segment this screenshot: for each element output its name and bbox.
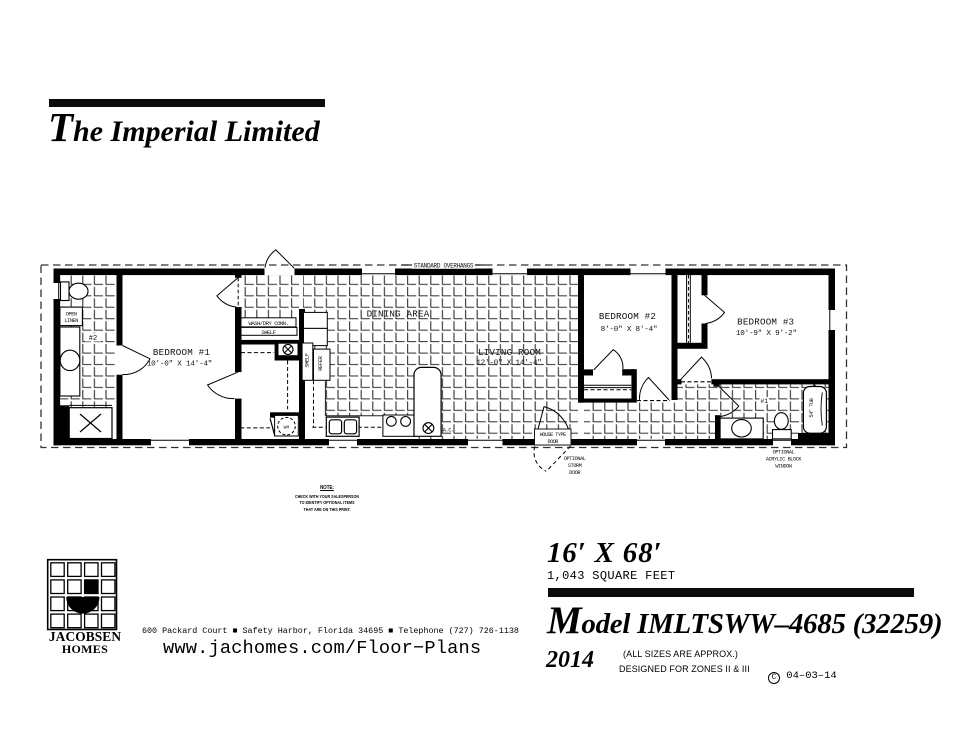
svg-text:LINEN: LINEN — [64, 318, 78, 324]
svg-text:OPTIONAL: OPTIONAL — [564, 456, 586, 462]
svg-text:SHELF: SHELF — [261, 329, 275, 336]
svg-text:SHELF: SHELF — [304, 353, 311, 367]
svg-text:REFER: REFER — [317, 355, 324, 370]
svg-text:LIVING ROOM: LIVING ROOM — [478, 347, 541, 358]
svg-text:A.C.: A.C. — [443, 426, 454, 433]
svg-text:12'-0" X 14'-4": 12'-0" X 14'-4" — [476, 359, 541, 367]
svg-text:BEDROOM #3: BEDROOM #3 — [737, 317, 794, 328]
svg-text:DOOR: DOOR — [547, 439, 558, 445]
svg-text:#2: #2 — [89, 335, 97, 343]
svg-text:ACRYLIC BLOCK: ACRYLIC BLOCK — [766, 457, 803, 463]
svg-text:BEDROOM #2: BEDROOM #2 — [599, 311, 656, 322]
svg-text:STORM: STORM — [568, 463, 582, 469]
svg-text:WASH/DRY CONN.: WASH/DRY CONN. — [249, 320, 289, 327]
svg-text:10'-0" X 14'-4": 10'-0" X 14'-4" — [147, 361, 212, 369]
svg-text:OPEN: OPEN — [66, 311, 77, 317]
svg-text:WH: WH — [284, 424, 290, 430]
svg-text:WINDOW: WINDOW — [775, 464, 793, 470]
svg-text:DINING AREA: DINING AREA — [367, 309, 430, 320]
svg-text:10'-9" X 9'-2": 10'-9" X 9'-2" — [736, 330, 797, 338]
svg-text:STANDARD OVERHANGS: STANDARD OVERHANGS — [414, 262, 474, 269]
svg-text:DOOR: DOOR — [569, 470, 580, 476]
svg-text:#1: #1 — [760, 398, 768, 405]
svg-text:54" TUB: 54" TUB — [809, 398, 815, 417]
svg-text:BEDROOM #1: BEDROOM #1 — [153, 347, 210, 358]
svg-text:OPTIONAL: OPTIONAL — [773, 450, 795, 456]
svg-text:8'-0" X 8'-4": 8'-0" X 8'-4" — [601, 326, 658, 334]
svg-text:HOUSE TYPE: HOUSE TYPE — [540, 432, 567, 438]
